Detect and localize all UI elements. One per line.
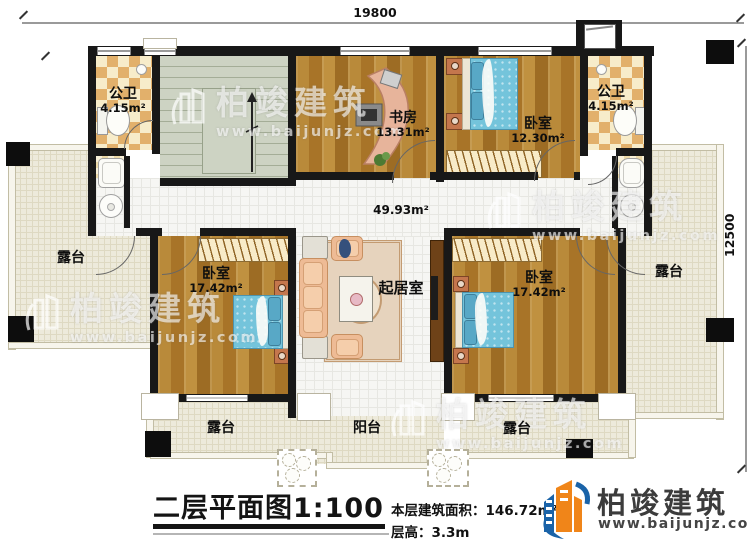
room-label-bath-left: 公卫 4.15m² [90, 86, 156, 115]
wall [644, 46, 652, 236]
room-label-bedroom-left: 卧室 17.42m² [172, 266, 260, 295]
hall-area-label: 49.93m² [368, 204, 434, 218]
room-label-bedroom-right: 卧室 17.42m² [495, 270, 583, 299]
floor-height-value: 3.3m [432, 525, 470, 541]
floor-height-info: 层高：3.3m [391, 521, 469, 541]
window [186, 395, 248, 401]
wall [616, 148, 648, 156]
floor-area-label: 本层建筑面积： [391, 503, 486, 519]
title-underline-thin [153, 533, 389, 535]
shower-head-icon [596, 64, 607, 75]
room-area: 17.42m² [495, 286, 583, 299]
side-table [302, 236, 328, 259]
floor-plan: 19800 12500 [0, 0, 750, 549]
brand-logo-icon [534, 476, 594, 542]
wall [444, 228, 452, 418]
balcony-label: 阳台 [336, 420, 398, 436]
nightstand [446, 58, 463, 75]
wall [448, 228, 580, 236]
room-name: 起居室 [363, 280, 439, 297]
wall [136, 228, 162, 236]
wall [88, 46, 96, 236]
wall [444, 172, 538, 180]
bed-sheet [475, 293, 487, 345]
room-area: 17.42m² [172, 282, 260, 295]
bed-sheet [482, 59, 494, 127]
round-sink [620, 194, 644, 218]
dimension-line-right [745, 46, 747, 472]
window [478, 47, 552, 55]
window [488, 395, 554, 401]
wall [88, 148, 126, 156]
title-underline [153, 524, 385, 529]
pillow [268, 297, 281, 321]
dimension-tick [19, 10, 28, 19]
wall [160, 178, 296, 186]
window-bay [598, 393, 636, 420]
window-bay [141, 393, 179, 420]
parapet [460, 452, 634, 459]
window [97, 47, 131, 55]
parapet [716, 144, 724, 420]
column [706, 40, 734, 64]
bathtub [98, 158, 125, 188]
column [6, 142, 30, 166]
floor-area-info: 本层建筑面积：146.72m² [391, 499, 558, 519]
column [145, 431, 171, 457]
dimension-top: 19800 [330, 5, 420, 20]
room-name: 卧室 [495, 270, 583, 286]
column [566, 439, 593, 458]
wall [150, 228, 158, 402]
room-name: 露台 [190, 420, 252, 436]
room-name: 书房 [360, 110, 446, 126]
armchair [331, 334, 363, 359]
room-area: 4.15m² [90, 102, 156, 115]
parapet [626, 412, 724, 419]
window-sill [143, 38, 177, 49]
parapet [8, 342, 154, 349]
column [706, 318, 734, 342]
room-label-living: 起居室 [363, 280, 439, 297]
terrace-right-label: 露台 [638, 264, 700, 280]
wall [288, 50, 296, 186]
window [340, 47, 410, 55]
round-sink [99, 194, 123, 218]
side-table [302, 336, 328, 359]
person-figure [339, 239, 351, 258]
dimension-right: 12500 [722, 195, 737, 275]
room-name: 露台 [40, 250, 102, 266]
wall [296, 172, 394, 180]
plan-title: 二层平面图1:100 [153, 486, 384, 525]
room-name: 卧室 [172, 266, 260, 282]
dimension-tick [41, 51, 50, 60]
closet [452, 238, 542, 262]
terrace-right-floor [652, 150, 716, 234]
wall [200, 228, 296, 236]
room-name: 卧室 [494, 116, 582, 132]
terrace-bottom-right-label: 露台 [486, 421, 548, 437]
terrace-left-label: 露台 [40, 250, 102, 266]
bed-sheet [256, 296, 268, 346]
room-name: 露台 [638, 264, 700, 280]
room-name: 公卫 [578, 84, 644, 100]
sofa [299, 258, 328, 338]
planter [427, 449, 469, 487]
room-label-bath-right: 公卫 4.15m² [578, 84, 644, 113]
floor-height-label: 层高： [391, 525, 432, 541]
nightstand [446, 113, 463, 130]
column [8, 316, 34, 342]
water-heater [619, 158, 645, 188]
shower-head-icon [136, 64, 147, 75]
terrace-bottom-left-label: 露台 [190, 420, 252, 436]
planter [277, 449, 317, 487]
room-area: 49.93m² [368, 204, 434, 218]
room-area: 4.15m² [578, 100, 644, 113]
dimension-line-top [22, 22, 744, 24]
room-name: 公卫 [90, 86, 156, 102]
room-name: 阳台 [336, 420, 398, 436]
room-name: 露台 [486, 421, 548, 437]
wall [124, 156, 130, 228]
window-bay [297, 393, 331, 421]
room-area: 13.31m² [360, 126, 446, 139]
stairs-arrow-icon [244, 92, 260, 178]
closet [198, 238, 292, 262]
pillow [268, 322, 281, 346]
window-bay [441, 393, 475, 421]
room-label-study: 书房 13.31m² [360, 110, 446, 139]
nightstand [453, 276, 469, 292]
brand-url: www.baijunjz.com [598, 516, 750, 532]
room-area: 12.30m² [494, 132, 582, 145]
parapet [650, 144, 724, 151]
wall [288, 228, 296, 418]
nightstand [453, 348, 469, 364]
room-label-bedroom-top: 卧室 12.30m² [494, 116, 582, 145]
